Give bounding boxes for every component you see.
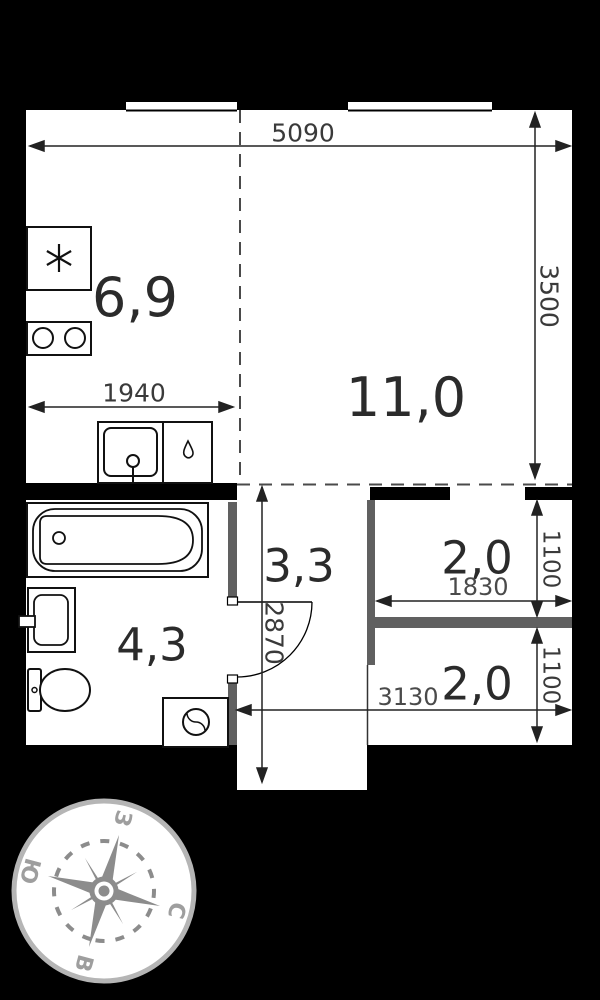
dim-label-3130: 3130	[377, 685, 438, 709]
wall-stub-left	[370, 487, 450, 500]
stove-burner-left	[33, 328, 53, 348]
dim-label-2870: 2870	[262, 601, 287, 665]
toilet-flush-dot	[32, 688, 37, 693]
windows	[126, 102, 492, 111]
floor-plan-drawing: С В Ю З	[0, 0, 600, 1000]
floor-plan-page: С В Ю З 6,9 11,0 3,3 4,3 2,0 2,0 5090 19…	[0, 0, 600, 1000]
door-jamb-bottom	[228, 675, 238, 683]
bathroom-wall-lower	[228, 683, 237, 745]
kitchen-area-label: 6,9	[92, 271, 178, 325]
dim-label-1830: 1830	[447, 575, 508, 599]
balcony-area-label: 2,0	[441, 662, 513, 707]
bathroom-area-label: 4,3	[116, 623, 188, 668]
storage-balcony-wall	[375, 617, 572, 628]
faucet-icon	[127, 455, 139, 467]
floor-hallway	[237, 483, 367, 790]
living-area-label: 11,0	[346, 371, 466, 425]
hallway-area-label: 3,3	[263, 544, 335, 589]
dim-label-1940: 1940	[102, 381, 166, 406]
kitchen-sink-icon	[104, 428, 157, 476]
door-jamb-top	[228, 597, 238, 605]
dim-label-1100-storage: 1100	[539, 530, 562, 589]
dim-label-1100-balcony: 1100	[539, 646, 562, 705]
wall-stub-right	[525, 487, 572, 500]
bathtub-drain	[53, 532, 65, 544]
living-window-icon	[348, 102, 492, 110]
compass-rose-icon: С В Ю З	[0, 788, 209, 994]
dim-label-5090: 5090	[271, 121, 335, 146]
bathroom-wall-upper	[228, 502, 237, 597]
hallway-storage-wall	[367, 500, 375, 665]
wall-kitchen-bathroom	[26, 483, 237, 500]
kitchen-window-icon	[126, 102, 237, 110]
bathroom-sink-basin	[34, 595, 68, 645]
bathroom-sink-tap	[19, 616, 35, 627]
dim-label-3500: 3500	[537, 264, 562, 328]
stove-burner-right	[65, 328, 85, 348]
toilet-icon	[40, 669, 90, 711]
